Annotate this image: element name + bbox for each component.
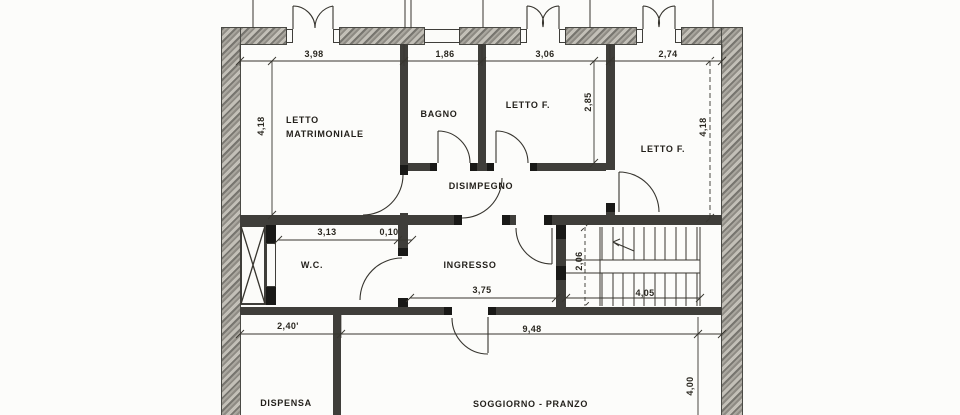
dim-top-letto-matrimoniale: 3,98: [289, 49, 339, 59]
dim-wc-width: 3,13: [302, 227, 352, 237]
dim-top-letto-f: 3,06: [520, 49, 570, 59]
dim-right-height: 4,18: [698, 105, 708, 149]
dim-top-bagno: 1,86: [420, 49, 470, 59]
room-label-soggiorno-pranzo: SOGGIORNO - PRANZO: [458, 398, 603, 412]
room-label-letto-matrimoniale: LETTO MATRIMONIALE: [286, 114, 386, 141]
room-label-bagno: BAGNO: [413, 108, 465, 122]
room-label-disimpegno: DISIMPEGNO: [442, 180, 520, 194]
dim-ingresso-width: 3,75: [457, 285, 507, 295]
dim-left-height: 4,18: [256, 104, 266, 148]
dim-soggiorno-height: 4,00: [685, 364, 695, 408]
plan-linework: [0, 0, 960, 415]
room-label-wc: W.C.: [292, 259, 332, 273]
dim-dispensa-width: 2,40': [263, 321, 313, 331]
french-door-symbols: [293, 6, 675, 29]
dim-top-letto-f-right: 2,74: [643, 49, 693, 59]
room-label-ingresso: INGRESSO: [438, 259, 502, 273]
dim-stairs-depth: 2,06: [574, 239, 584, 283]
dim-wall-thickness: 0,10: [364, 227, 414, 237]
room-label-dispensa: DISPENSA: [252, 397, 320, 411]
dim-letto-f-height: 2,85: [583, 80, 593, 124]
room-label-letto-f-right: LETTO F.: [634, 143, 692, 157]
floor-plan: LETTO MATRIMONIALE BAGNO LETTO F. LETTO …: [0, 0, 960, 415]
shaft-x: [241, 226, 265, 304]
room-label-letto-f-top: LETTO F.: [500, 99, 556, 113]
balcony-lines: [253, 0, 713, 28]
dim-stairs-width: 4,05: [620, 288, 670, 298]
dim-soggiorno-width: 9,48: [507, 324, 557, 334]
